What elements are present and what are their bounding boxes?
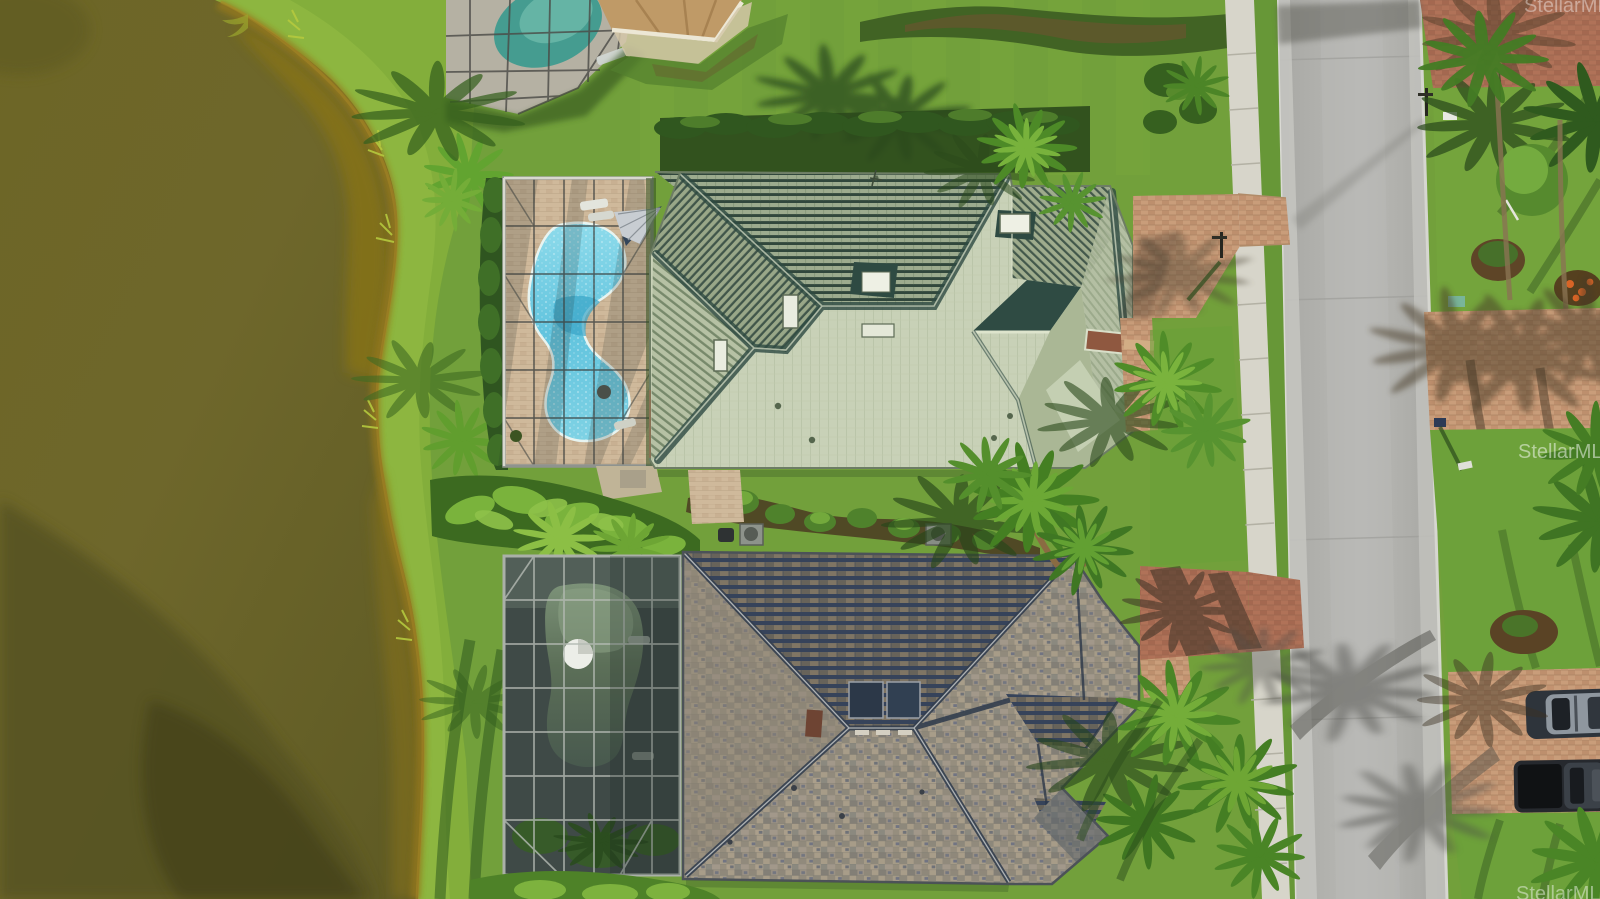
svg-text:StellarMLS: StellarMLS (1516, 883, 1600, 899)
svg-text:StellarMLS: StellarMLS (1518, 441, 1600, 463)
svg-text:StellarMLS: StellarMLS (1524, 0, 1600, 17)
